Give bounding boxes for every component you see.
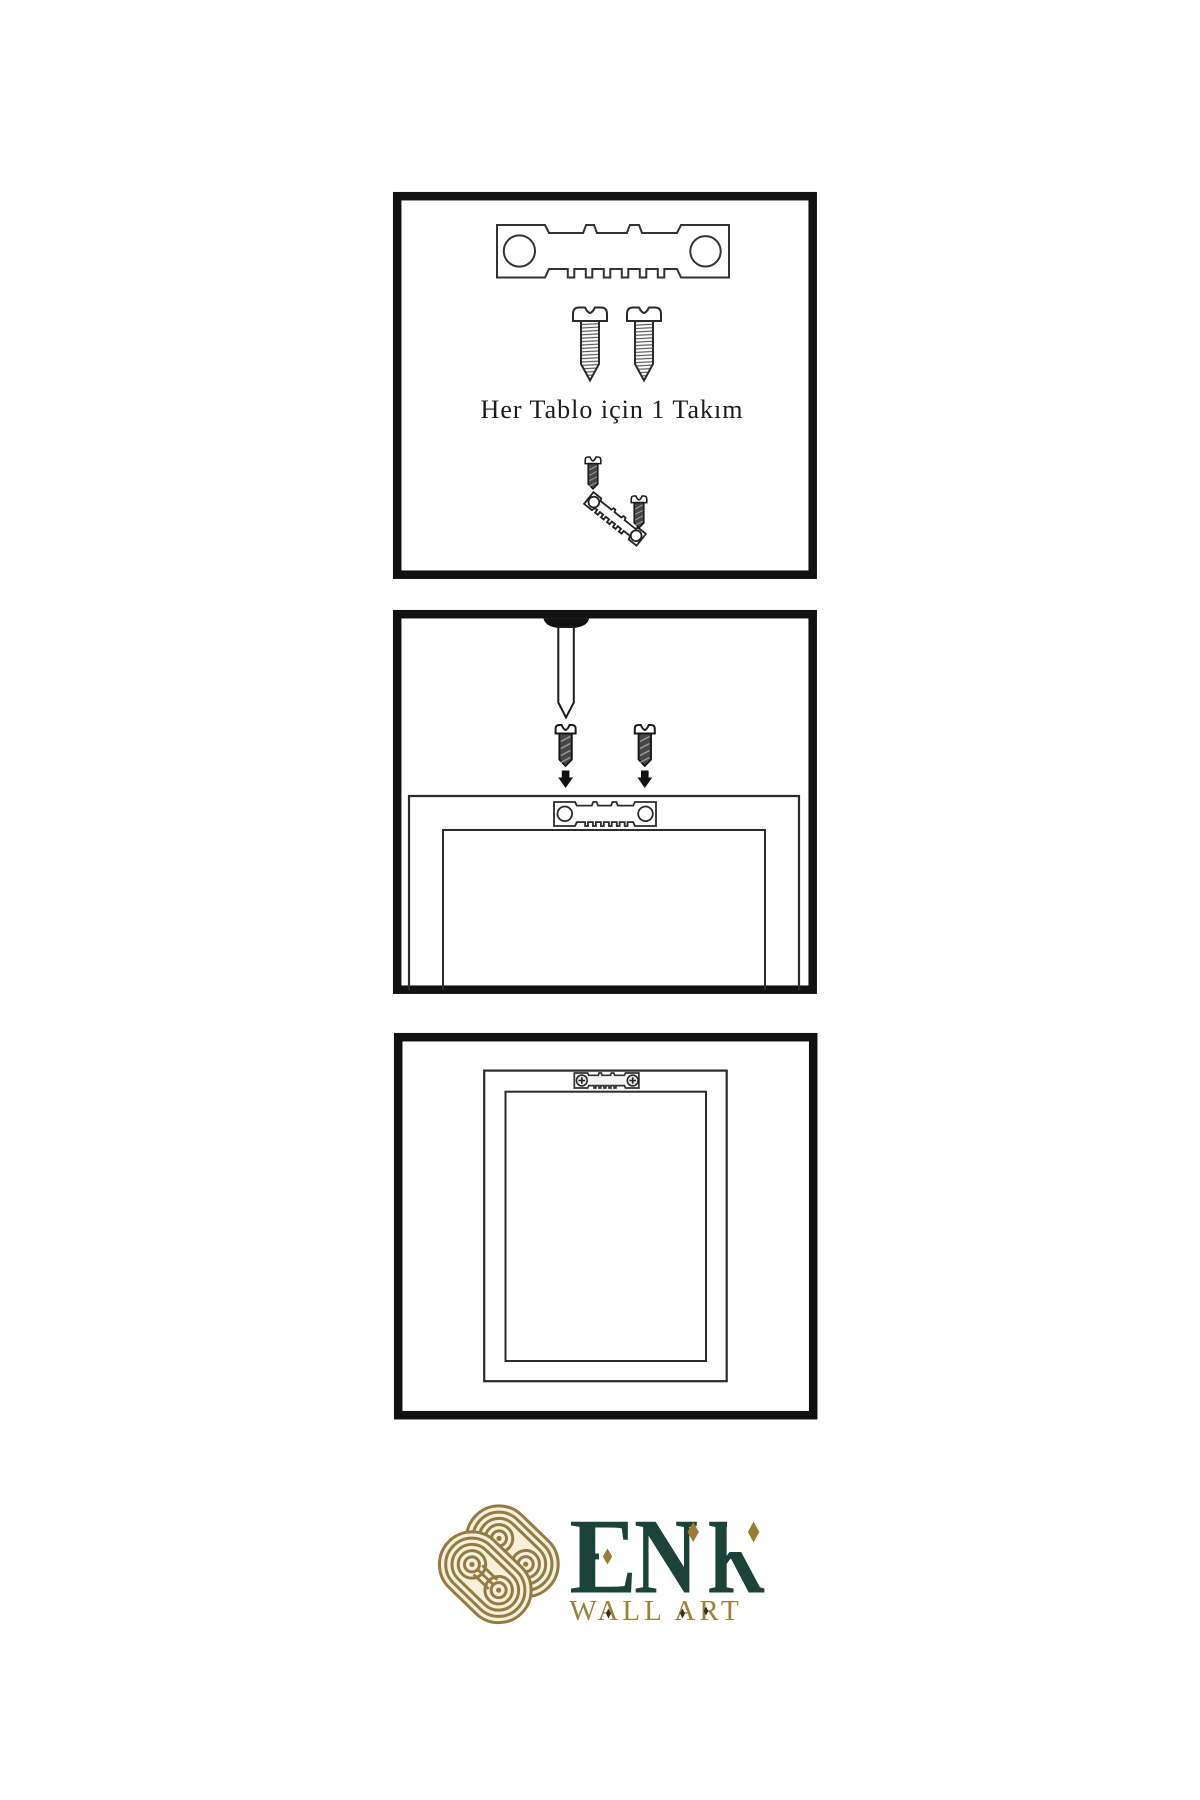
svg-text:Her Tablo için 1 Takım: Her Tablo için 1 Takım — [481, 395, 744, 424]
svg-text:WALL ART: WALL ART — [569, 1595, 742, 1627]
